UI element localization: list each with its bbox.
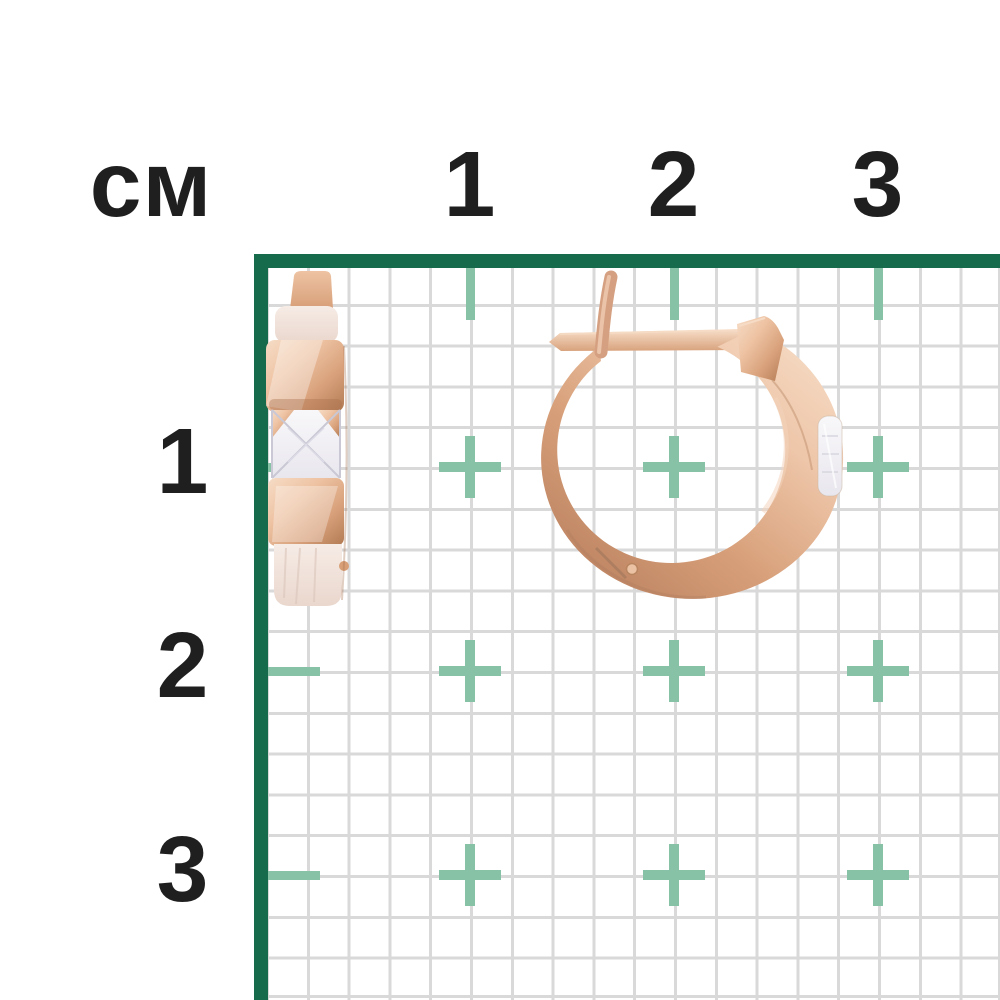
cm-tick-left xyxy=(268,463,320,472)
y-axis-label-1cm: 1 xyxy=(113,415,253,508)
cm-cross-mark xyxy=(465,844,475,906)
cm-tick-top xyxy=(874,268,883,320)
cm-cross-mark xyxy=(873,640,883,702)
cm-tick-top xyxy=(466,268,475,320)
x-axis-label-3cm: 3 xyxy=(808,138,948,231)
x-axis-label-1cm: 1 xyxy=(400,138,540,231)
unit-label: см xyxy=(81,138,221,231)
cm-cross-mark xyxy=(669,640,679,702)
cm-cross-mark xyxy=(669,844,679,906)
cm-tick-left xyxy=(268,871,320,880)
ruler-left-edge xyxy=(254,254,268,1000)
measurement-grid xyxy=(268,268,1000,1000)
cm-cross-mark xyxy=(465,436,475,498)
cm-cross-mark xyxy=(465,640,475,702)
y-axis-label-3cm: 3 xyxy=(113,823,253,916)
cm-tick-top xyxy=(670,268,679,320)
x-axis-label-2cm: 2 xyxy=(604,138,744,231)
ruler-top-edge xyxy=(254,254,1000,268)
y-axis-label-2cm: 2 xyxy=(113,619,253,712)
size-chart-canvas: см 1 2 3 1 2 3 xyxy=(0,0,1000,1000)
cm-cross-mark xyxy=(669,436,679,498)
cm-cross-mark xyxy=(873,844,883,906)
cm-tick-left xyxy=(268,667,320,676)
cm-cross-mark xyxy=(873,436,883,498)
